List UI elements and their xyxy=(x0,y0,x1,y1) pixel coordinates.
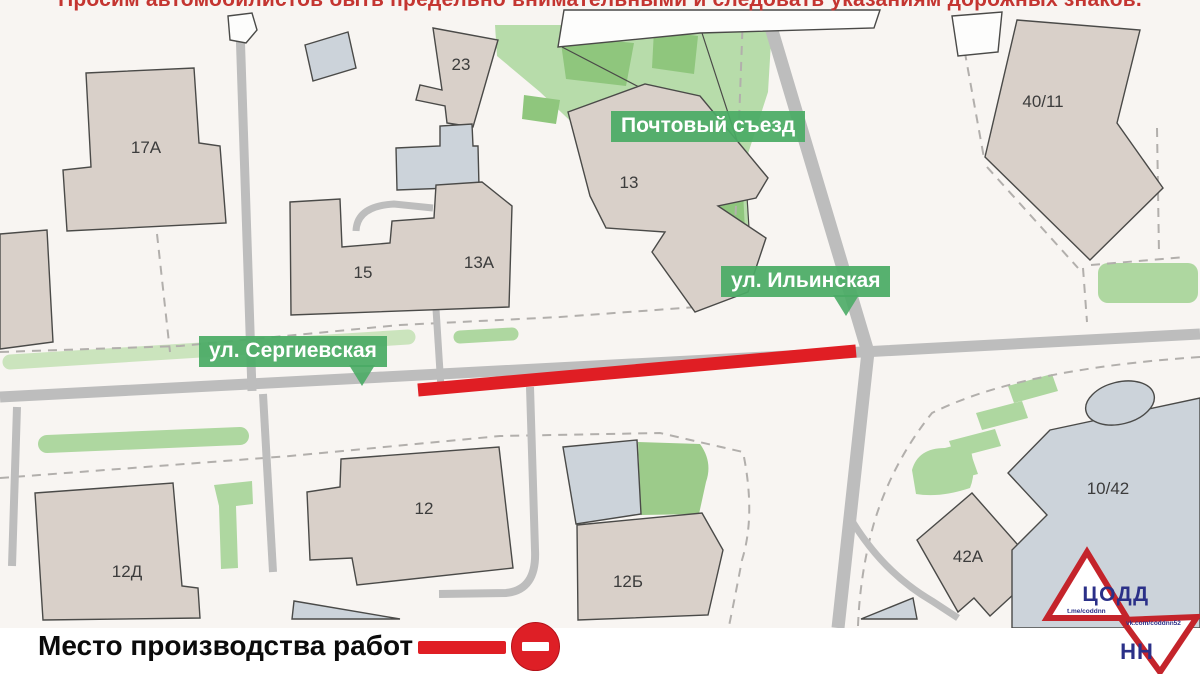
logo-telegram-text: t.me/coddnn xyxy=(1067,608,1106,615)
codd-nn-logo: ЦОДД t.me/coddnn vk.com/coddnn52 НН xyxy=(0,0,1200,674)
map-screenshot: 17А 23 13 15 13А 40/11 12Д 12 12Б 42А 10… xyxy=(0,0,1200,674)
logo-org-text: ЦОДД xyxy=(1082,583,1149,606)
logo-city-text: НН xyxy=(1120,639,1154,664)
logo-vk-text: vk.com/coddnn52 xyxy=(1126,620,1181,627)
